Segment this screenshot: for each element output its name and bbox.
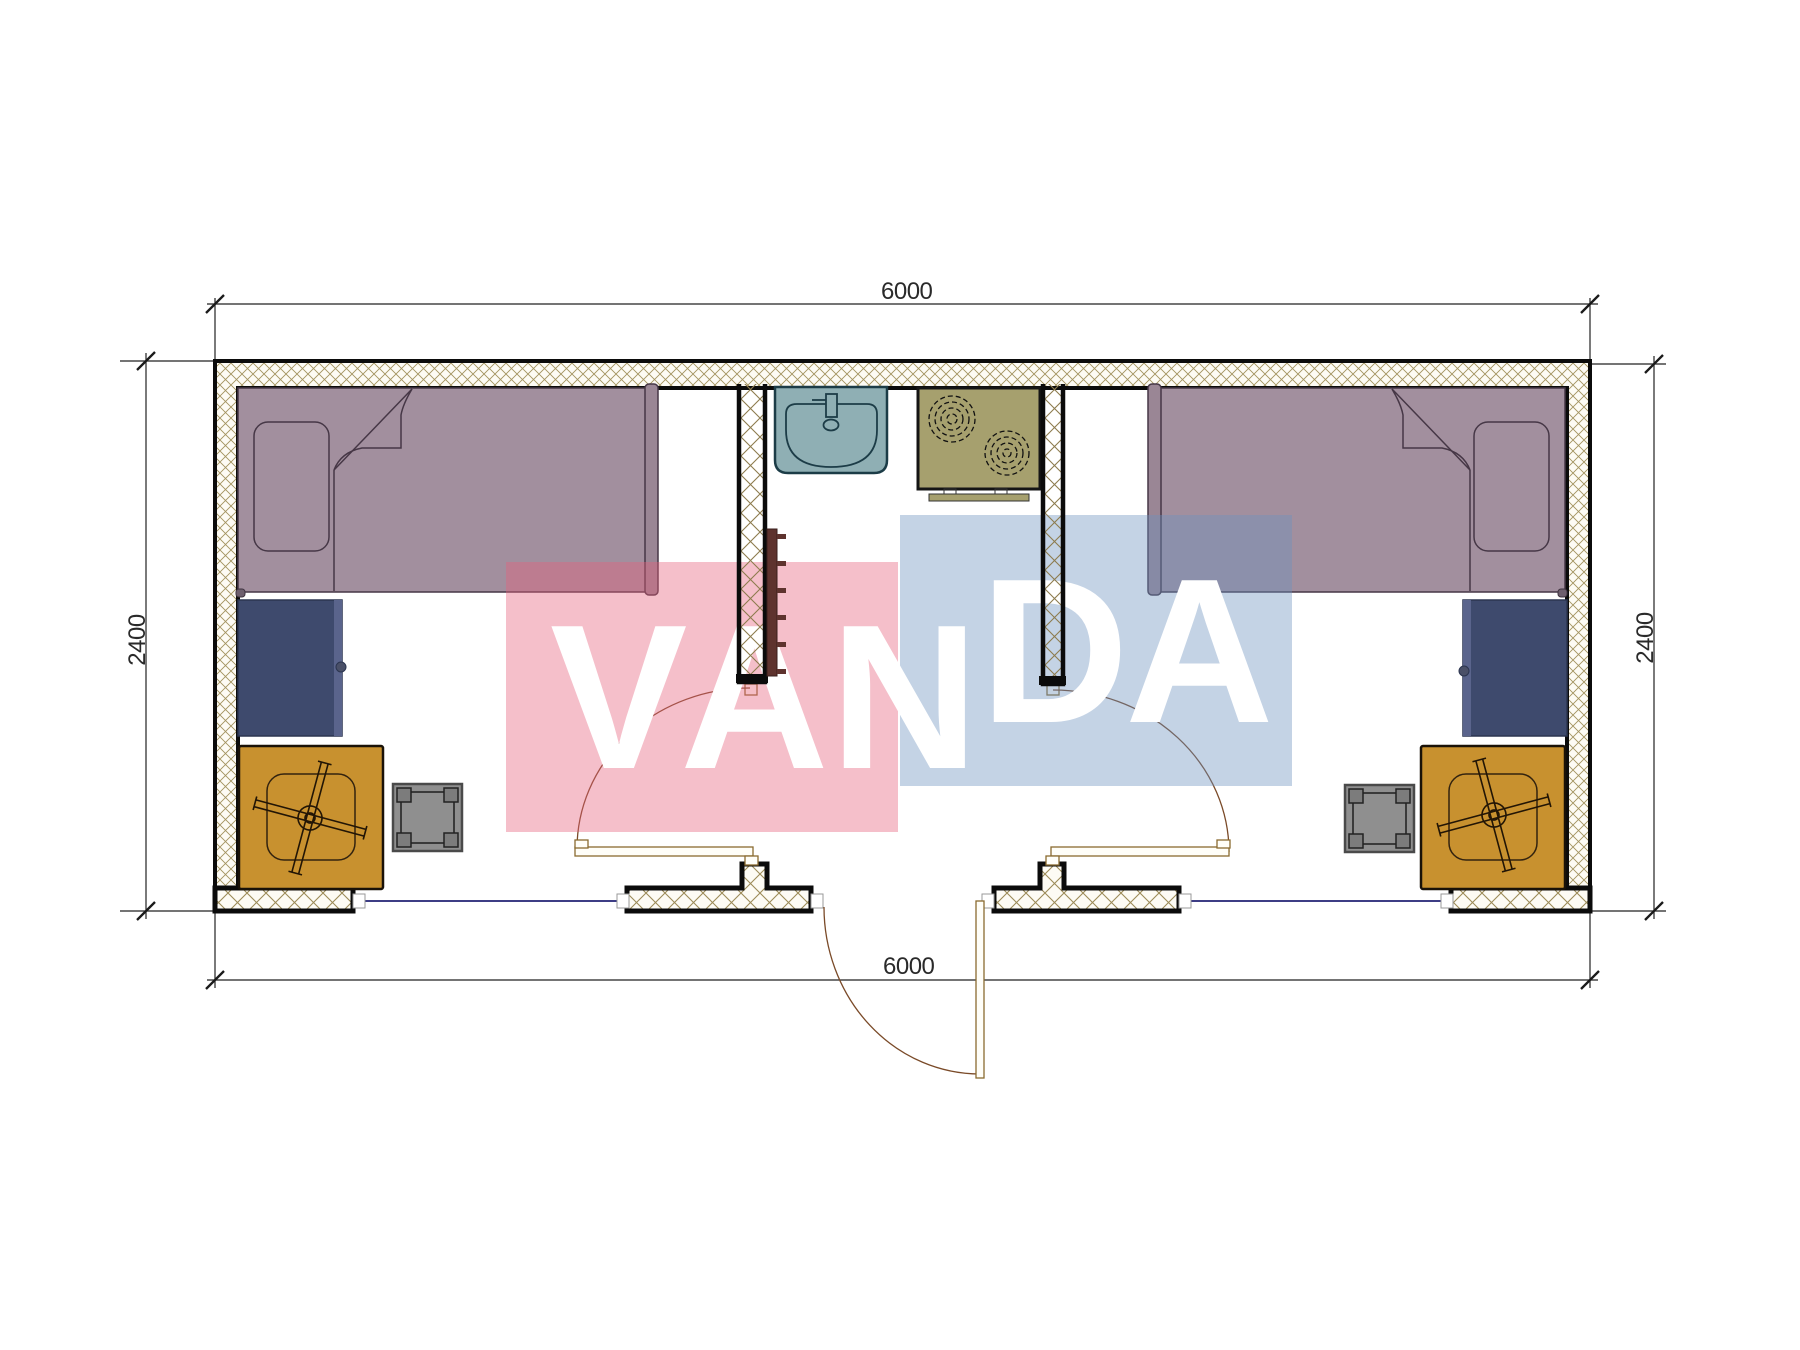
svg-text:6000: 6000 bbox=[881, 278, 933, 305]
svg-text:A: A bbox=[1125, 536, 1274, 766]
svg-text:V: V bbox=[550, 582, 687, 812]
svg-text:6000: 6000 bbox=[883, 953, 935, 980]
svg-text:N: N bbox=[830, 582, 979, 812]
svg-text:2400: 2400 bbox=[124, 614, 151, 666]
svg-text:2400: 2400 bbox=[1632, 612, 1659, 664]
